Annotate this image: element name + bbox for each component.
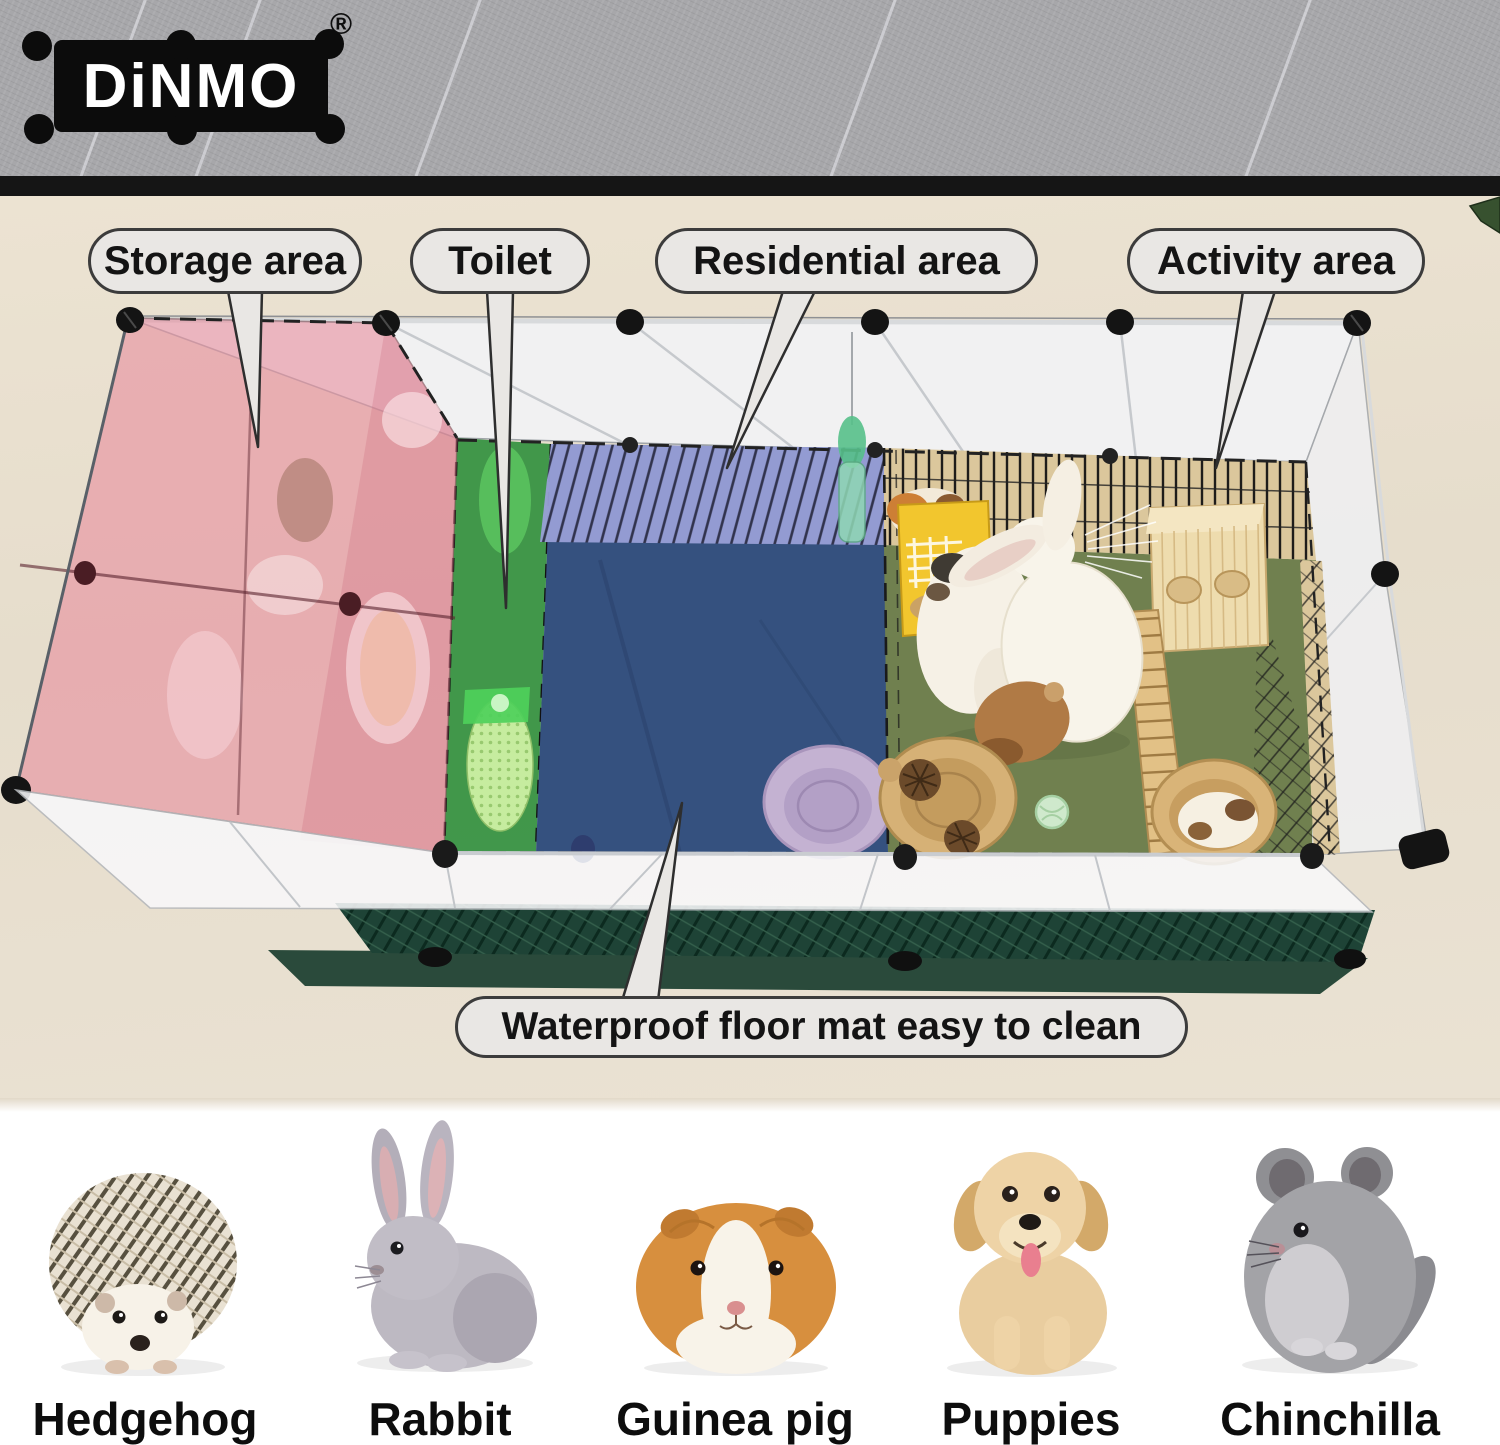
plant-leaf xyxy=(1470,197,1500,233)
toilet-zone xyxy=(444,438,551,853)
activity-area-label: Activity area xyxy=(1157,239,1395,284)
storage-zone xyxy=(1,318,457,853)
guinea-pig-basket xyxy=(1152,760,1276,864)
logo-corner-dot xyxy=(166,30,196,60)
logo-corner-dot xyxy=(315,114,345,144)
purple-basket xyxy=(764,746,892,858)
logo-corner-dot xyxy=(167,115,197,145)
base-floor-mat xyxy=(268,903,1375,994)
pinecone xyxy=(944,820,980,856)
wooden-house xyxy=(1146,504,1268,652)
logo-corner-dot xyxy=(22,31,52,61)
brand-logo-text: DiNMO xyxy=(83,51,300,122)
floor-mat-label: Waterproof floor mat easy to clean xyxy=(501,1005,1141,1049)
floor-mat-callout: Waterproof floor mat easy to clean xyxy=(455,996,1188,1058)
storage-area-callout: Storage area xyxy=(88,228,362,294)
residential-area-label: Residential area xyxy=(693,239,1000,284)
storage-area-label: Storage area xyxy=(104,239,346,284)
activity-area-callout: Activity area xyxy=(1127,228,1425,294)
residential-area-callout: Residential area xyxy=(655,228,1038,294)
logo-corner-dot xyxy=(314,29,344,59)
toilet-label: Toilet xyxy=(448,239,552,284)
pinecone xyxy=(899,759,941,801)
playpen-photo xyxy=(0,0,1500,1445)
pinecone-basket xyxy=(878,738,1016,858)
product-infographic: DiNMO ® xyxy=(0,0,1500,1445)
toilet-callout: Toilet xyxy=(410,228,590,294)
logo-corner-dot xyxy=(24,114,54,144)
